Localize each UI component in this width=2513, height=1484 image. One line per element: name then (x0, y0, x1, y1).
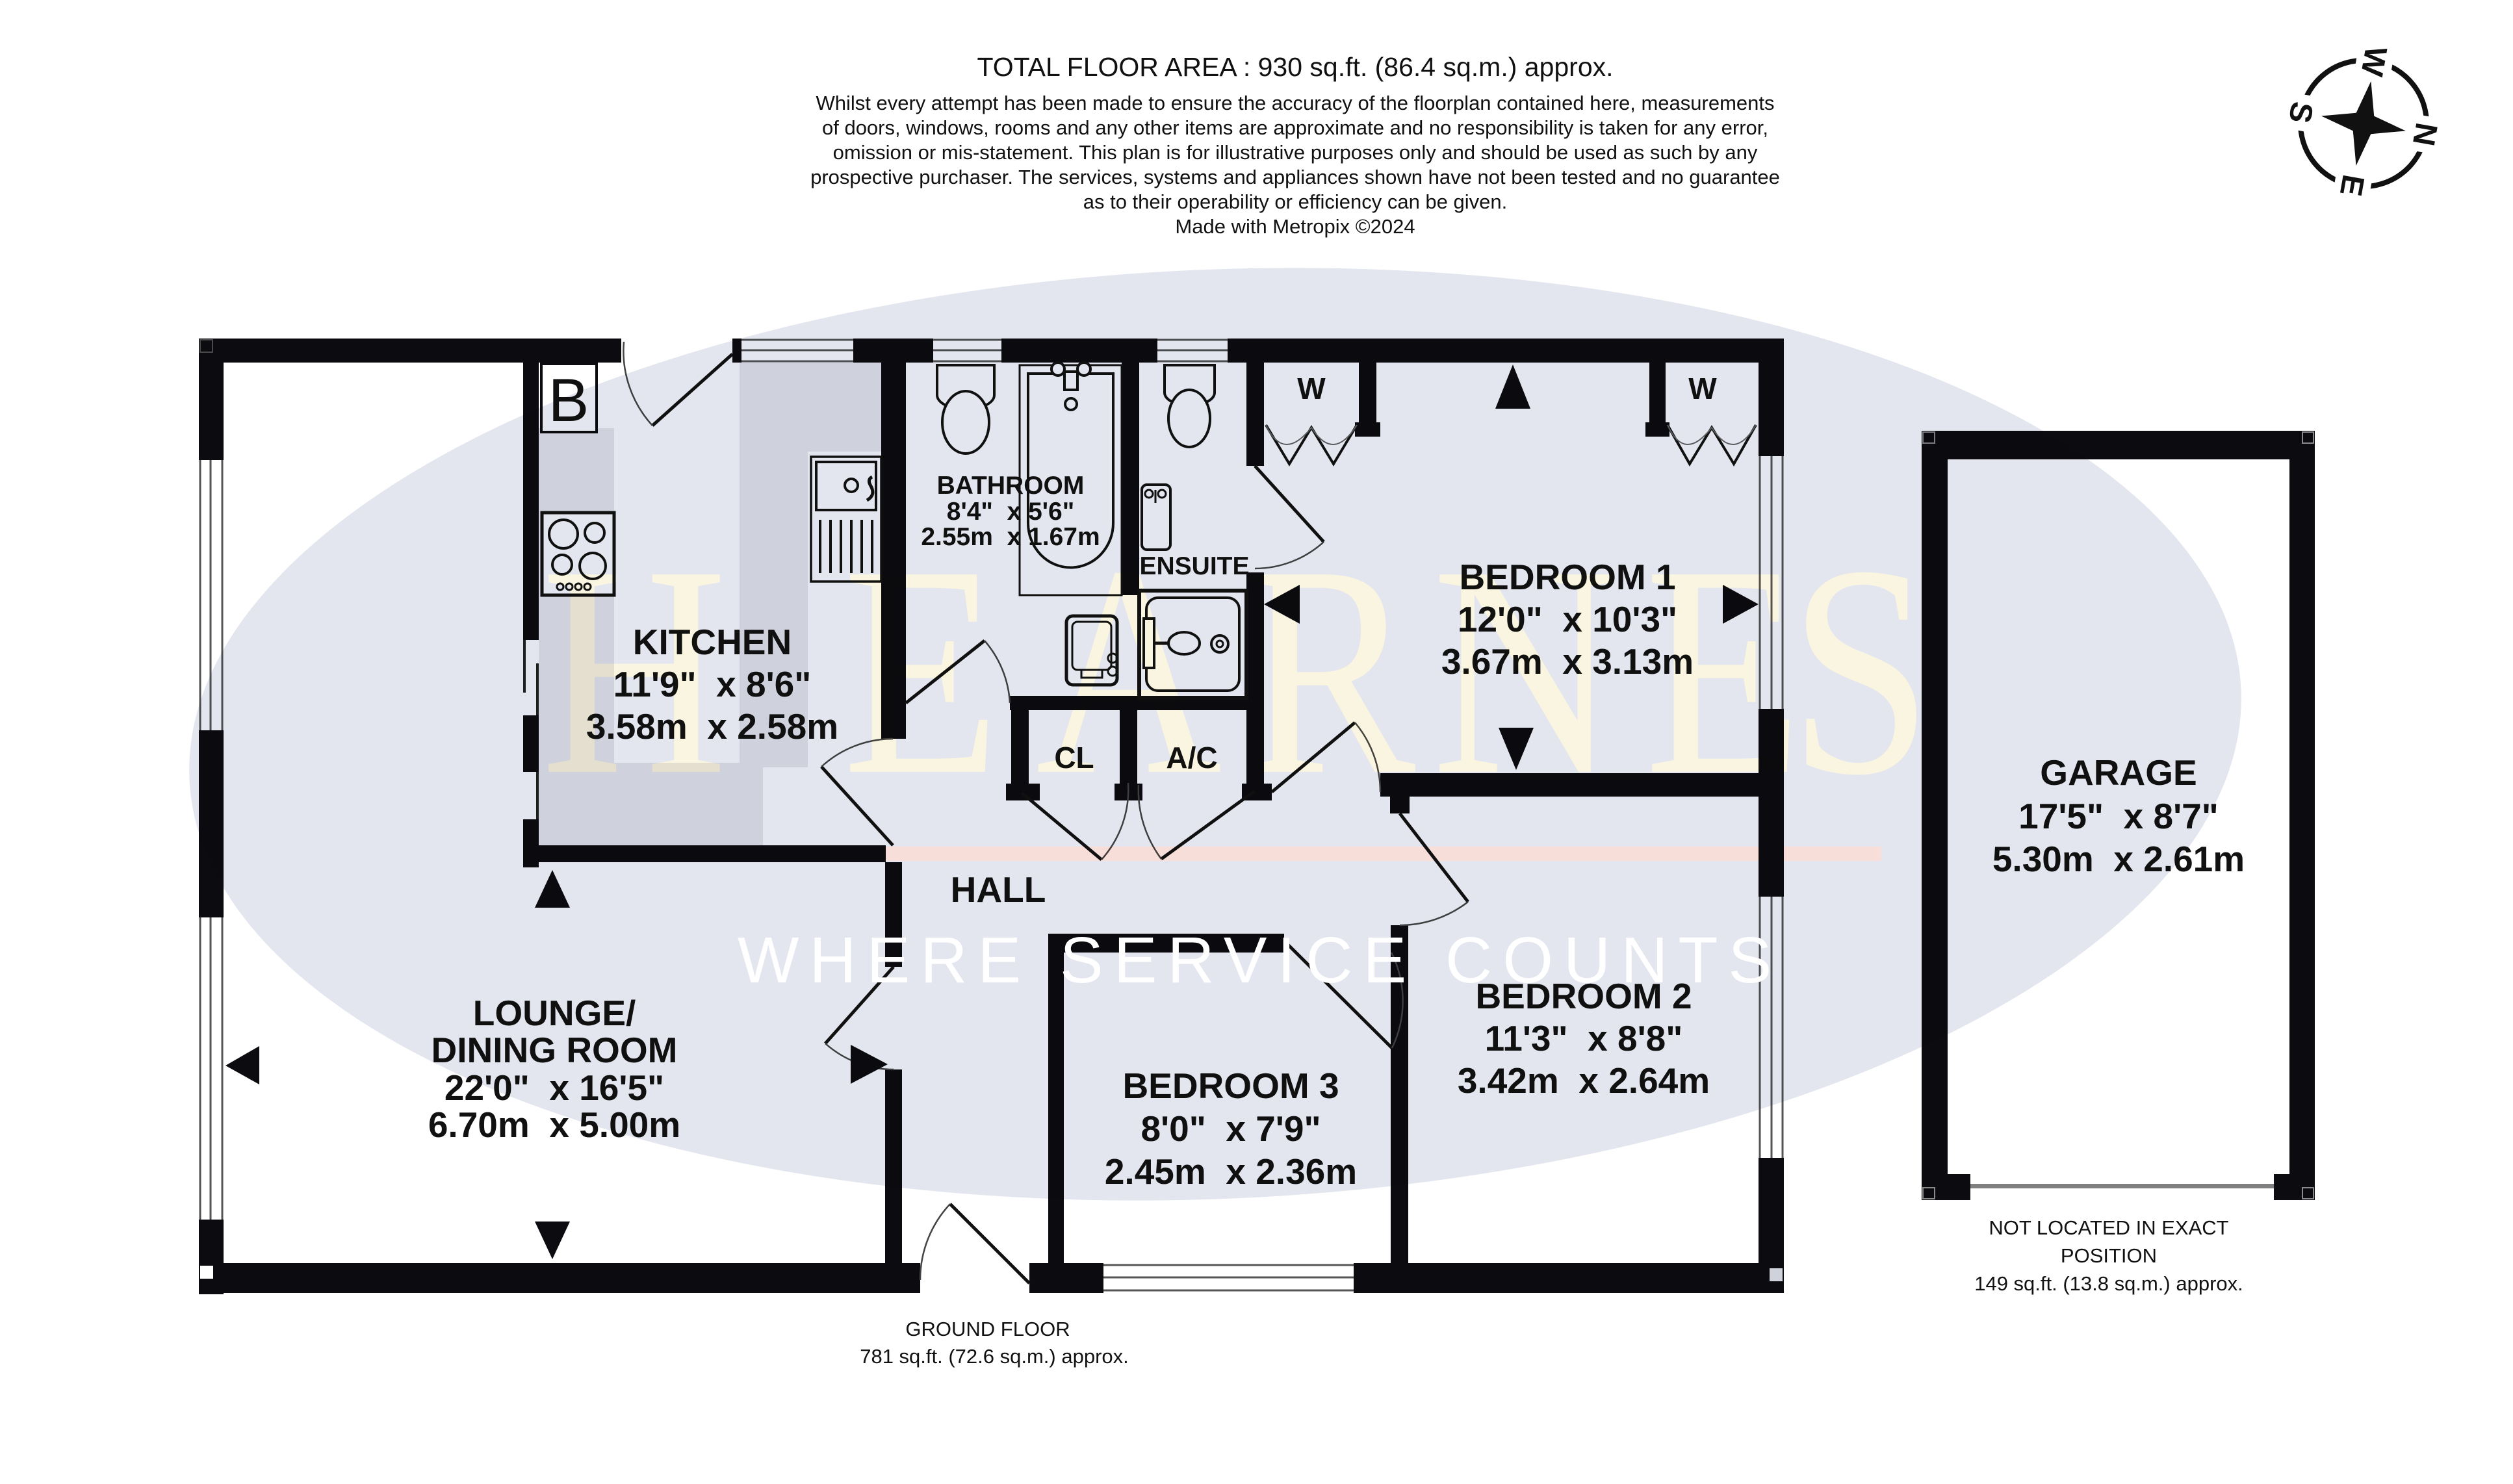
svg-text:GROUND FLOOR: GROUND FLOOR (905, 1318, 1070, 1340)
svg-text:NOT LOCATED IN EXACT: NOT LOCATED IN EXACT (1989, 1216, 2228, 1239)
svg-text:omission or mis-statement. Thi: omission or mis-statement. This plan is … (833, 141, 1758, 164)
svg-text:HALL: HALL (951, 869, 1046, 910)
svg-text:Made with Metropix ©2024: Made with Metropix ©2024 (1175, 215, 1415, 238)
svg-text:W: W (1297, 372, 1326, 405)
svg-text:POSITION: POSITION (2061, 1244, 2157, 1267)
svg-text:22'0" x 16'5": 22'0" x 16'5" (445, 1068, 664, 1108)
svg-text:2.55m x 1.67m: 2.55m x 1.67m (921, 523, 1100, 551)
svg-text:ENSUITE: ENSUITE (1139, 552, 1249, 580)
svg-text:B: B (548, 366, 589, 434)
svg-text:5.30m x 2.61m: 5.30m x 2.61m (1992, 839, 2245, 879)
svg-text:2.45m x 2.36m: 2.45m x 2.36m (1105, 1151, 1357, 1192)
svg-text:3.58m x 2.58m: 3.58m x 2.58m (586, 706, 838, 747)
svg-text:TOTAL FLOOR AREA : 930 sq.ft.: TOTAL FLOOR AREA : 930 sq.ft. (86.4 sq.m… (977, 52, 1613, 82)
svg-text:3.67m x 3.13m: 3.67m x 3.13m (1441, 641, 1694, 682)
svg-text:GARAGE: GARAGE (2040, 752, 2197, 793)
svg-text:BEDROOM 1: BEDROOM 1 (1459, 557, 1675, 597)
svg-text:8'0" x 7'9": 8'0" x 7'9" (1141, 1108, 1321, 1149)
svg-text:KITCHEN: KITCHEN (633, 622, 792, 662)
svg-text:11'3" x 8'8": 11'3" x 8'8" (1485, 1018, 1683, 1058)
svg-text:WHERE SERVICE COUNTS: WHERE SERVICE COUNTS (738, 924, 1782, 997)
svg-text:149 sq.ft. (13.8 sq.m.) approx: 149 sq.ft. (13.8 sq.m.) approx. (1974, 1272, 2243, 1295)
svg-text:LOUNGE/: LOUNGE/ (473, 993, 636, 1033)
svg-text:as to their operability or eff: as to their operability or efficiency ca… (1083, 190, 1508, 213)
svg-text:BATHROOM: BATHROOM (937, 472, 1085, 500)
svg-text:of doors, windows, rooms and a: of doors, windows, rooms and any other i… (822, 116, 1768, 139)
svg-text:prospective purchaser. The ser: prospective purchaser. The services, sys… (810, 166, 1780, 188)
svg-text:Whilst every attempt has been: Whilst every attempt has been made to en… (816, 92, 1774, 114)
svg-text:8'4" x 5'6": 8'4" x 5'6" (947, 498, 1075, 526)
svg-text:17'5" x 8'7": 17'5" x 8'7" (2018, 796, 2219, 836)
svg-text:DINING ROOM: DINING ROOM (432, 1030, 678, 1070)
svg-text:11'9" x 8'6": 11'9" x 8'6" (613, 664, 812, 704)
svg-text:6.70m x 5.00m: 6.70m x 5.00m (428, 1105, 680, 1145)
svg-text:12'0" x 10'3": 12'0" x 10'3" (1458, 599, 1677, 639)
svg-text:W: W (1688, 372, 1717, 405)
svg-text:A/C: A/C (1166, 741, 1217, 774)
svg-text:CL: CL (1054, 741, 1094, 774)
svg-text:S: S (1789, 504, 1933, 838)
svg-text:3.42m x 2.64m: 3.42m x 2.64m (1458, 1060, 1710, 1101)
svg-text:BEDROOM 3: BEDROOM 3 (1122, 1066, 1339, 1106)
svg-text:781 sq.ft. (72.6 sq.m.) approx: 781 sq.ft. (72.6 sq.m.) approx. (860, 1345, 1129, 1368)
